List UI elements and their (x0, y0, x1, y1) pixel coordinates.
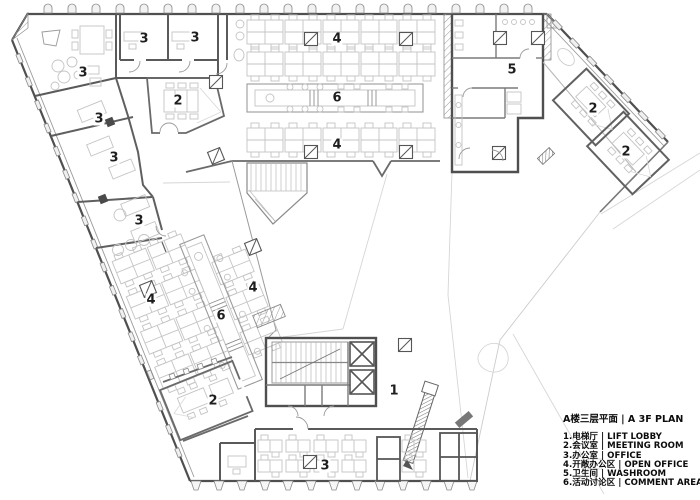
legend-title: A楼三层平面 | A 3F PLAN (563, 411, 700, 425)
meeting-room-bottomleft (160, 357, 253, 441)
room-label-comment: 6 (331, 92, 342, 105)
elevator-shaft (350, 342, 374, 394)
duct-element (455, 411, 473, 428)
room-label-meeting: 2 (207, 395, 218, 408)
winder-stair (247, 163, 307, 224)
window-mullions-top (44, 4, 532, 13)
legend: A楼三层平面 | A 3F PLAN 1.电梯厅 | LIFT LOBBY 2.… (563, 411, 700, 489)
room-label-meeting: 2 (587, 103, 598, 116)
bottom-service-cells (377, 433, 477, 481)
room-label-meeting: 2 (620, 146, 631, 159)
meeting-wing (537, 45, 668, 194)
column-marker (105, 117, 115, 127)
room-label-office: 3 (319, 460, 330, 473)
room-label-lift-lobby: 1 (388, 385, 399, 398)
column-marker (98, 194, 108, 204)
room-label-comment: 6 (215, 310, 226, 323)
room-label-washroom: 5 (506, 64, 517, 77)
room-label-office: 3 (108, 152, 119, 165)
room-label-open-office: 4 (247, 282, 258, 295)
room-label-open-office: 4 (331, 33, 342, 46)
room-label-office: 3 (133, 215, 144, 228)
small-office-furniture (124, 32, 190, 49)
room-label-meeting: 2 (172, 95, 183, 108)
print-counter (253, 304, 286, 327)
room-label-office: 3 (189, 32, 200, 45)
room-label-open-office: 4 (145, 294, 156, 307)
legend-item-comment-area: 6.活动讨论区 | COMMENT AREA (563, 479, 700, 488)
core-stair-elevators (266, 338, 376, 406)
room-label-office: 3 (93, 113, 104, 126)
room-label-office: 3 (77, 67, 88, 80)
room-label-open-office: 4 (331, 139, 342, 152)
ramp-marker (537, 148, 554, 165)
room-label-office: 3 (138, 33, 149, 46)
window-mullions-bottom (191, 481, 477, 490)
floor-plan-page: 3 3 3 2 3 3 3 4 6 4 5 2 2 4 4 6 2 3 1 A楼… (0, 0, 700, 500)
strip-office-furniture (77, 101, 159, 244)
